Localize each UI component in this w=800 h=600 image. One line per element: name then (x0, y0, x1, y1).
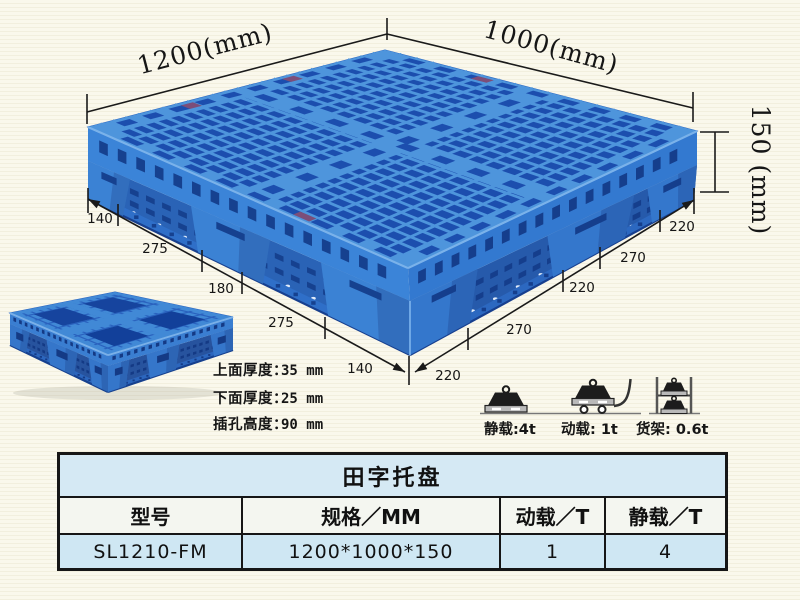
dimension-segment-label: 220 (569, 280, 595, 296)
thickness-notes: 上面厚度： 35 mm 下面厚度： 25 mm 插孔高度： 90 mm (213, 361, 323, 433)
dimension-segment-label: 140 (347, 361, 373, 377)
static-load-caption: 静载:4t (484, 420, 536, 438)
dimension-segment-label: 275 (268, 315, 294, 331)
note-fork-height-label: 插孔高度： (213, 415, 288, 433)
dynamic-load-caption: 动载: 1t (561, 420, 618, 438)
cell-static-load: 4 (604, 535, 725, 568)
dimension-segment-label: 180 (208, 281, 234, 297)
cell-dynamic-load: 1 (499, 535, 604, 568)
small-pallet-3d-view (10, 292, 233, 400)
spec-table-title: 田字托盘 (60, 455, 725, 498)
cell-model: SL1210-FM (60, 535, 241, 568)
col-header-dynamic-load: 动载／T (499, 498, 604, 533)
note-fork-height-value: 90 mm (281, 417, 323, 433)
width-dimension-label: 1000(mm) (481, 14, 622, 79)
note-top-thickness-label: 上面厚度： (213, 361, 288, 379)
col-header-model: 型号 (60, 498, 241, 533)
datasheet-page: 1200(mm) 1000(mm) 150 (mm) 140 275 180 2… (0, 0, 800, 600)
spec-table-header-row: 型号 规格／MM 动载／T 静载／T (60, 498, 725, 535)
dimension-segment-label: 270 (620, 250, 646, 266)
dynamic-load-icon (572, 379, 631, 413)
dimension-segment-label: 220 (435, 368, 461, 384)
rack-load-caption: 货架: 0.6t (636, 420, 709, 438)
dimension-segment-label: 275 (142, 241, 168, 257)
rack-load-icon (657, 377, 691, 414)
height-dimension-label: 150 (mm) (746, 105, 775, 236)
col-header-spec: 规格／MM (241, 498, 499, 533)
dimension-segment-label: 220 (669, 219, 695, 235)
cell-spec: 1200*1000*150 (241, 535, 499, 568)
arrowhead (415, 362, 427, 372)
note-top-thickness-value: 35 mm (281, 363, 323, 379)
height-dimension-line (700, 132, 729, 192)
note-bottom-thickness-value: 25 mm (281, 391, 323, 407)
spec-table: 田字托盘 型号 规格／MM 动载／T 静载／T SL1210-FM 1200*1… (57, 452, 728, 571)
dimension-segment-label: 270 (506, 322, 532, 338)
dimension-segment-label: 140 (87, 211, 113, 227)
static-load-icon (485, 386, 527, 412)
col-header-static-load: 静载／T (604, 498, 725, 533)
length-dimension-label: 1200(mm) (134, 17, 275, 80)
note-bottom-thickness-label: 下面厚度： (213, 389, 288, 407)
spec-table-data-row: SL1210-FM 1200*1000*150 1 4 (60, 535, 725, 568)
arrowhead (393, 363, 405, 372)
